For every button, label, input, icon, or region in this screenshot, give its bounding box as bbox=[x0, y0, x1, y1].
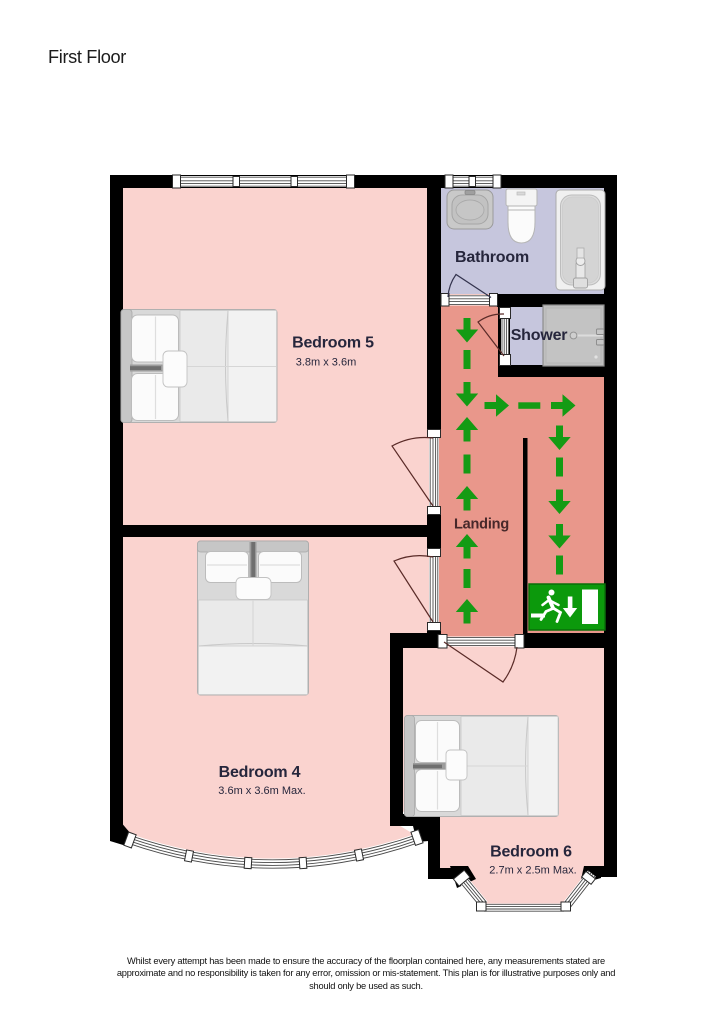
svg-text:3.8m x 3.6m: 3.8m x 3.6m bbox=[296, 357, 357, 369]
svg-text:Bathroom: Bathroom bbox=[455, 249, 529, 266]
svg-text:2.7m x 2.5m Max.: 2.7m x 2.5m Max. bbox=[489, 865, 576, 877]
svg-text:Shower: Shower bbox=[511, 327, 568, 344]
svg-text:Landing: Landing bbox=[454, 517, 509, 533]
svg-text:Bedroom 5: Bedroom 5 bbox=[292, 335, 374, 352]
svg-text:3.6m x 3.6m Max.: 3.6m x 3.6m Max. bbox=[218, 785, 305, 797]
svg-text:Bedroom 4: Bedroom 4 bbox=[219, 764, 301, 781]
svg-text:Bedroom 6: Bedroom 6 bbox=[490, 844, 572, 861]
